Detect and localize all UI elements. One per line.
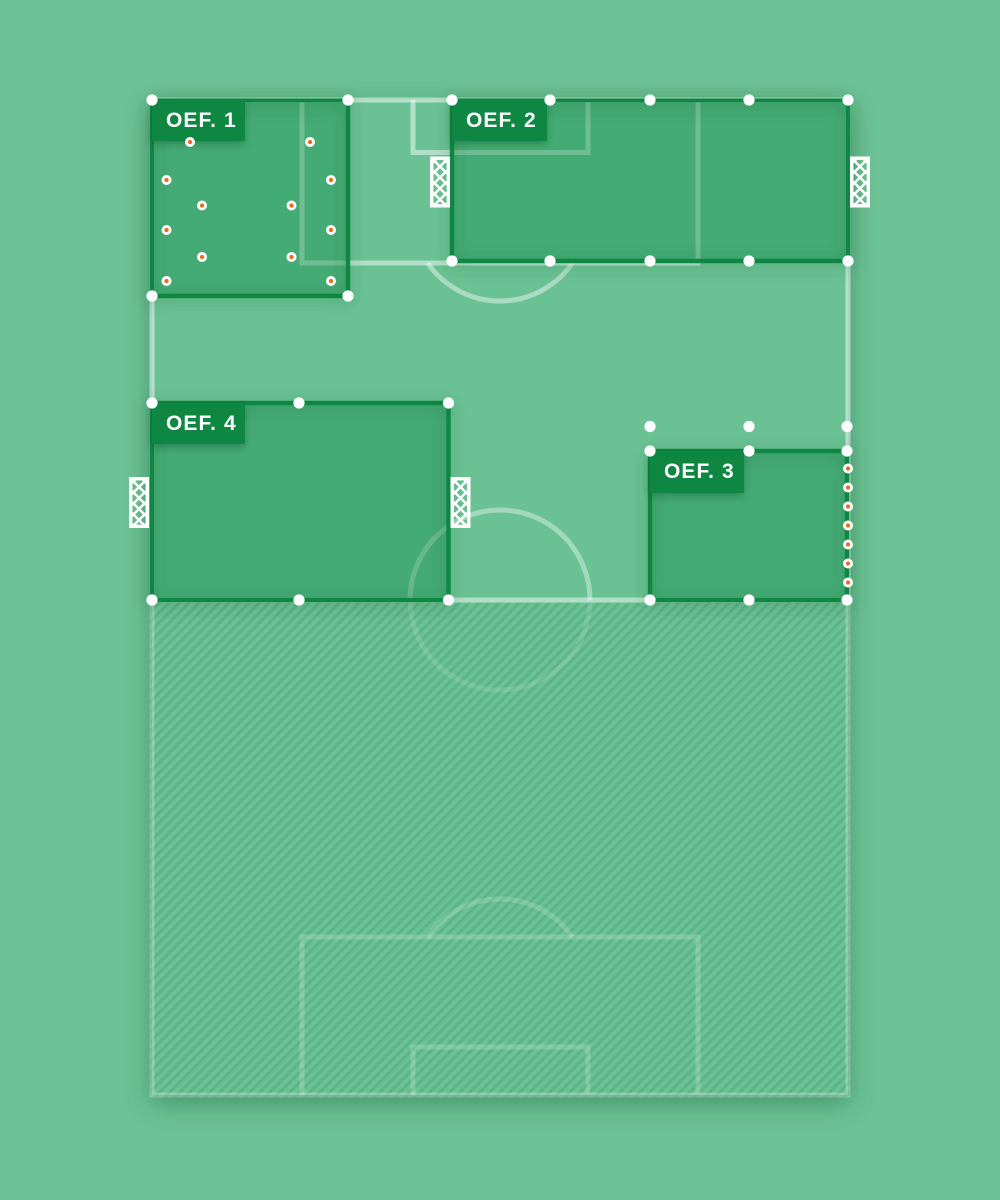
svg-text:OEF. 2: OEF. 2 — [466, 109, 537, 132]
svg-text:OEF. 3: OEF. 3 — [664, 460, 735, 483]
svg-text:OEF. 1: OEF. 1 — [166, 109, 237, 132]
svg-text:OEF. 4: OEF. 4 — [166, 412, 237, 435]
